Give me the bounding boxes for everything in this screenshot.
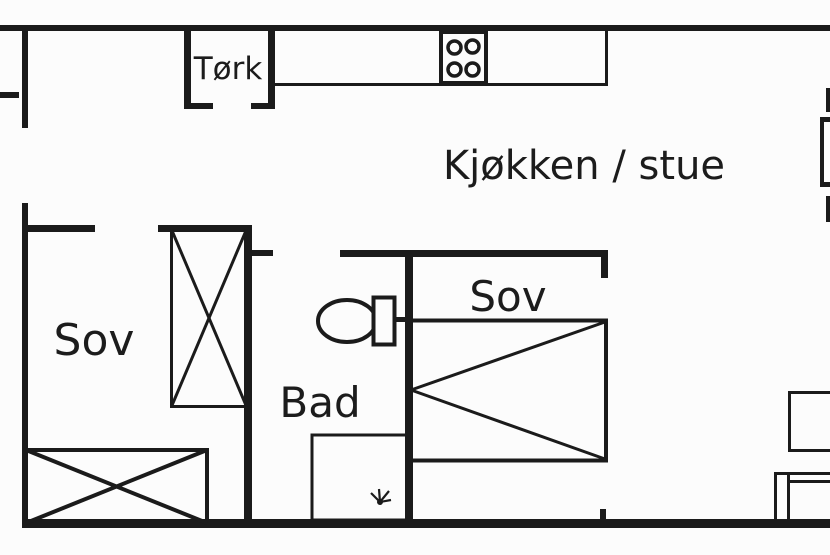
drain-spoke-2 bbox=[379, 489, 380, 502]
toilet-tank bbox=[374, 298, 395, 345]
fragment-sliver-top bbox=[826, 88, 830, 112]
wall-bedroomright-corner bbox=[601, 250, 608, 278]
fragment-sliver-bottom bbox=[826, 196, 830, 222]
wall-tork-doorframe-right bbox=[251, 103, 275, 109]
toilet-icon bbox=[318, 298, 406, 345]
wall-tork-right bbox=[268, 31, 275, 109]
room-label-bedroom-right: Sov bbox=[469, 272, 546, 321]
floor-plan-canvas: Tørk Kjøkken / stue Sov Sov Bad bbox=[0, 0, 830, 555]
toilet-bowl bbox=[318, 300, 376, 342]
room-label-kitchen-living: Kjøkken / stue bbox=[443, 143, 725, 189]
counter-right-edge bbox=[605, 31, 608, 86]
bed-triangle-box bbox=[411, 321, 606, 461]
wall-bath-doorframe-left bbox=[250, 250, 273, 256]
wall-left-upper bbox=[22, 25, 28, 128]
bed-crossed-box bbox=[26, 450, 207, 523]
interior-walls bbox=[22, 225, 608, 519]
table-outline bbox=[790, 393, 830, 451]
room-label-drying: Tørk bbox=[193, 51, 263, 87]
fragment-vertical bbox=[820, 117, 824, 187]
wall-bedroomright-bottom-stub bbox=[600, 509, 606, 519]
right-edge-fragment bbox=[820, 88, 830, 222]
wall-tork-left bbox=[184, 31, 191, 109]
wall-tork-doorframe-left bbox=[184, 103, 213, 109]
shower-outline bbox=[312, 435, 408, 520]
stove-outline bbox=[441, 32, 486, 83]
room-labels: Tørk Kjøkken / stue Sov Sov Bad bbox=[54, 51, 725, 427]
bed-right-diag-top bbox=[411, 322, 605, 390]
floor-plan: Tørk Kjøkken / stue Sov Sov Bad bbox=[0, 0, 830, 555]
shower-drain-icon bbox=[371, 489, 391, 505]
stove-burners-icon bbox=[441, 32, 486, 83]
bed-right-outline bbox=[411, 321, 606, 461]
room-label-bathroom: Bad bbox=[279, 378, 360, 427]
wall-bedroomleft-top-stub bbox=[22, 225, 95, 232]
side-table bbox=[790, 393, 830, 451]
wall-entry-stub bbox=[0, 92, 19, 98]
wall-bath-bedroomright-top bbox=[340, 250, 608, 257]
fragment-tick-bottom bbox=[820, 182, 830, 187]
shower-area bbox=[312, 435, 408, 520]
outer-walls bbox=[0, 25, 830, 528]
kitchen-counter bbox=[274, 31, 608, 86]
sofa-cut-off bbox=[776, 474, 830, 521]
wall-top bbox=[0, 25, 830, 31]
wardrobe-crossed-box bbox=[172, 230, 247, 407]
room-label-bedroom-left: Sov bbox=[54, 315, 135, 366]
bed-right-diag-bottom bbox=[411, 390, 605, 459]
